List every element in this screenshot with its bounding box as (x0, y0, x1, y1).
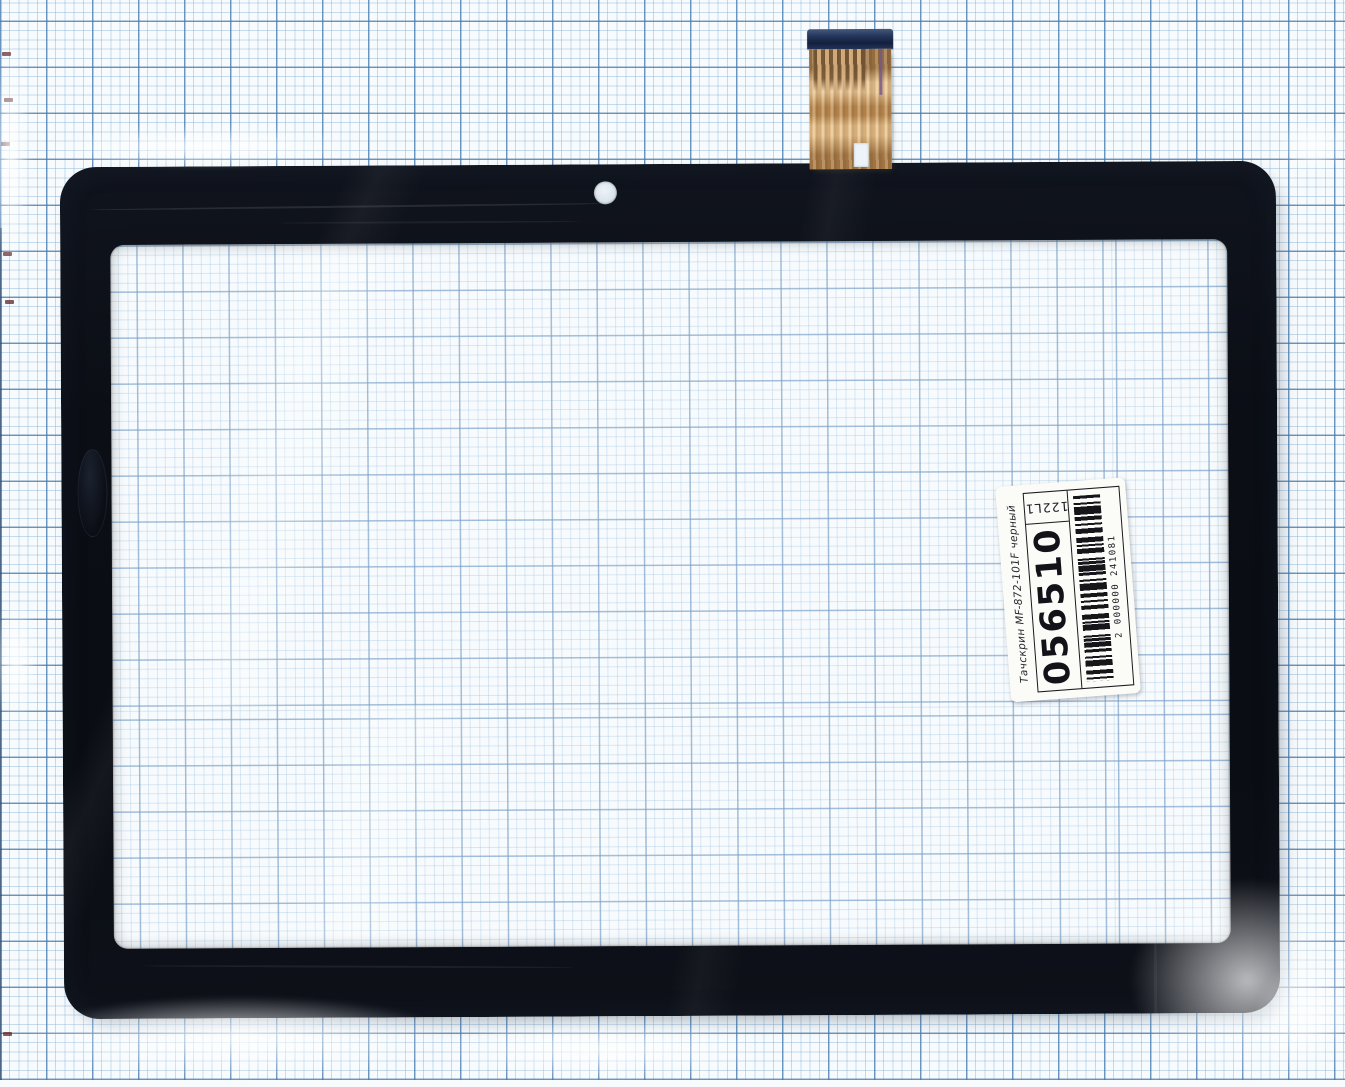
camera-hole (594, 181, 617, 204)
inventory-label: Тачскрин MF-872-101F черный 122L1 056510… (995, 477, 1141, 702)
home-button-outline (77, 449, 107, 537)
paper-mark (1, 142, 10, 146)
paper-mark (4, 98, 13, 102)
cell-code-box: 122L1 (1024, 491, 1069, 525)
cable-notch (854, 143, 869, 167)
cable-connector-stiffener (807, 29, 893, 49)
touchscreen-digitizer: Тачскрин MF-872-101F черный 122L1 056510… (60, 161, 1280, 1019)
cable-trace-fingers (813, 49, 865, 91)
cell-code-text: 122L1 (1024, 498, 1069, 516)
cable-trace-line (879, 49, 882, 95)
label-box: 122L1 056510 2 000000 241081 (1023, 486, 1135, 693)
paper-mark (5, 300, 14, 304)
paper-mark (3, 252, 12, 256)
paper-edge-shadow (0, 228, 2, 1080)
paper-mark (3, 1032, 12, 1036)
flex-cable (809, 29, 892, 169)
paper-mark (2, 52, 11, 56)
